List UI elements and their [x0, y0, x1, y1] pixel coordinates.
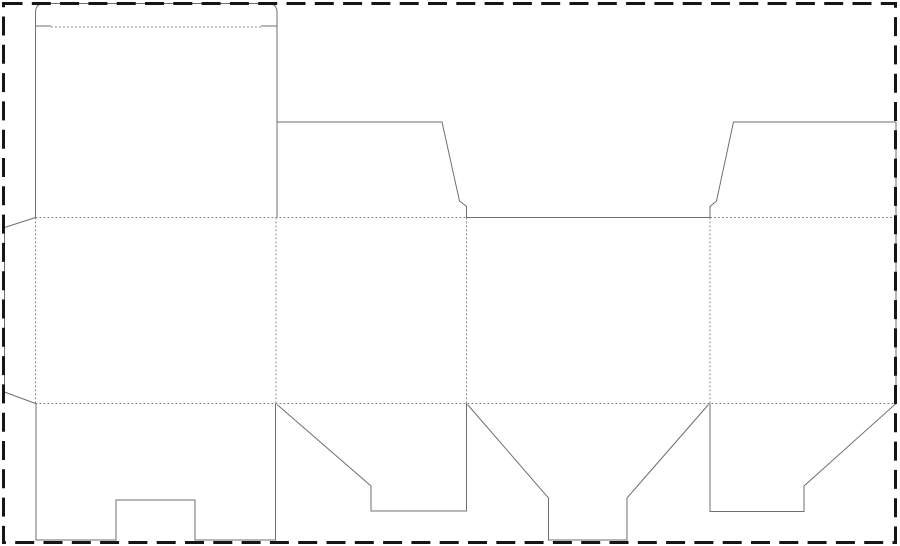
- cut-tuck-lid-outline: [36, 4, 278, 218]
- cut-top-dust-flap-right: [710, 122, 896, 218]
- dieline-drawing: [0, 0, 900, 546]
- page-border: [4, 4, 896, 543]
- dieline-page: [0, 0, 900, 546]
- cut-bottom-flap-side-right: [710, 404, 896, 512]
- cut-top-dust-flap-left: [277, 122, 467, 218]
- cut-bottom-flap-tongue: [468, 405, 709, 541]
- cut-bottom-flap-side-left: [277, 404, 467, 512]
- cut-glue-flap-outline: [5, 218, 36, 404]
- cut-bottom-flap-back: [36, 404, 276, 541]
